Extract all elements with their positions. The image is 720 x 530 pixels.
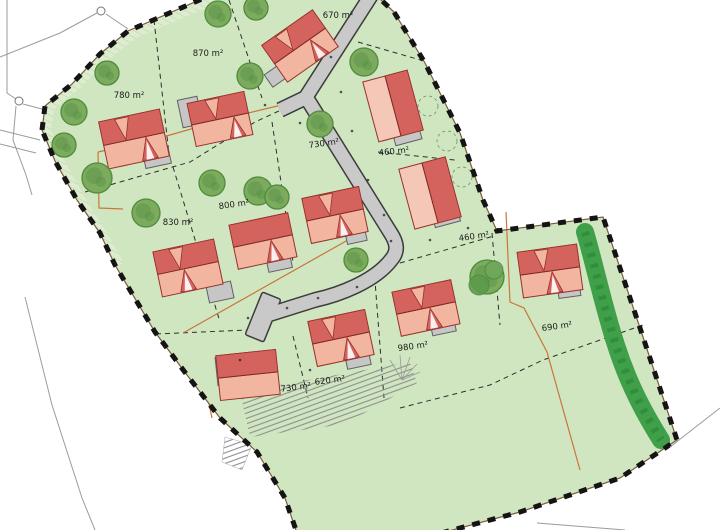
tree-texture	[73, 111, 82, 120]
tree-icon	[344, 248, 368, 272]
plot-area-label: 870 m²	[193, 49, 224, 59]
site-plan-drawing	[0, 0, 720, 530]
tree-texture	[249, 75, 258, 84]
tree-texture	[106, 72, 114, 80]
tree-texture	[469, 275, 489, 295]
survey-dot	[309, 369, 312, 372]
survey-dot	[247, 317, 250, 320]
existing-line	[0, 130, 40, 140]
existing-line	[106, 14, 128, 29]
survey-dot	[390, 240, 393, 243]
survey-dot	[330, 56, 333, 59]
tree-icon	[237, 63, 263, 89]
existing-line	[13, 106, 32, 195]
survey-point-icon	[97, 7, 105, 15]
tree-icon	[244, 0, 268, 20]
existing-line	[0, 144, 36, 153]
tree-icon	[95, 61, 119, 85]
plot-area-label: 830 m²	[163, 218, 194, 228]
house	[216, 349, 280, 400]
survey-dot	[340, 91, 343, 94]
tree-icon	[350, 48, 378, 76]
tree-texture	[355, 259, 363, 267]
survey-dot	[367, 179, 370, 182]
plot-area-label: 670 m²	[323, 11, 354, 21]
tree-texture	[96, 177, 107, 188]
tree-icon	[61, 99, 87, 125]
tree-icon	[265, 185, 289, 209]
survey-dot	[239, 359, 242, 362]
existing-line	[25, 297, 95, 530]
tree-texture	[319, 123, 328, 132]
existing-line	[0, 13, 97, 57]
survey-dot	[351, 130, 354, 133]
existing-line	[670, 408, 720, 447]
tree-texture	[211, 182, 220, 191]
tree-texture	[255, 7, 263, 15]
tree-texture	[63, 144, 71, 152]
existing-line	[23, 104, 42, 109]
tree-icon	[469, 260, 504, 295]
survey-dot	[264, 104, 267, 107]
survey-dot	[429, 239, 432, 242]
tree-texture	[276, 196, 284, 204]
survey-dot	[286, 307, 289, 310]
survey-point-icon	[15, 97, 23, 105]
survey-dot	[317, 297, 320, 300]
existing-line	[537, 523, 625, 530]
plot-area-label: 780 m²	[114, 91, 145, 101]
tree-icon	[307, 111, 333, 137]
site-plan-page: 670 m² 870 m² 780 m² 730 m² 460 m² 460 m…	[0, 0, 720, 530]
tree-texture	[217, 13, 226, 22]
tree-icon	[205, 1, 231, 27]
tree-icon	[52, 133, 76, 157]
survey-dot	[299, 122, 302, 125]
survey-dot	[383, 214, 386, 217]
survey-dot	[356, 286, 359, 289]
tree-icon	[82, 163, 112, 193]
tree-texture	[363, 61, 373, 71]
tree-icon	[132, 199, 160, 227]
survey-dot	[467, 227, 470, 230]
tree-texture	[145, 212, 155, 222]
tree-texture	[485, 261, 503, 279]
house	[517, 244, 583, 298]
existing-line	[7, 0, 16, 99]
tree-icon	[199, 170, 225, 196]
